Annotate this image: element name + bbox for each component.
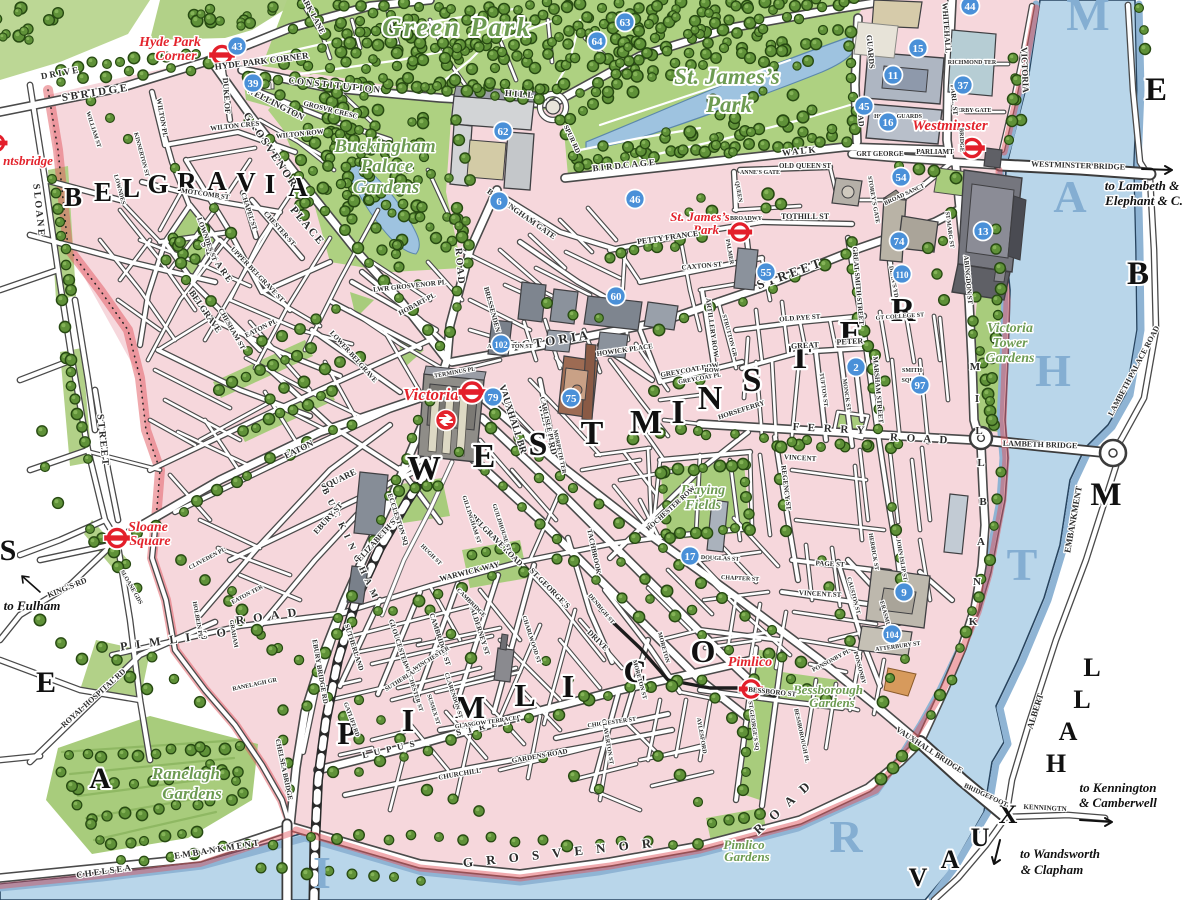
- svg-text:S: S: [0, 534, 16, 567]
- svg-text:Palace: Palace: [360, 156, 414, 177]
- svg-text:R: R: [829, 811, 863, 862]
- svg-text:A: A: [1053, 171, 1086, 222]
- svg-text:I: I: [671, 394, 684, 431]
- svg-text:to Kennington: to Kennington: [1080, 780, 1157, 795]
- svg-text:37: 37: [958, 80, 970, 92]
- svg-text:Corner: Corner: [155, 49, 197, 64]
- svg-text:M: M: [1090, 477, 1121, 513]
- svg-text:15: 15: [913, 43, 925, 55]
- svg-text:11: 11: [888, 70, 898, 82]
- svg-text:HILL: HILL: [505, 88, 536, 100]
- svg-text:W: W: [407, 450, 441, 487]
- svg-text:A: A: [1059, 717, 1078, 746]
- svg-text:L: L: [975, 425, 982, 437]
- svg-text:PAGE ST: PAGE ST: [815, 559, 845, 569]
- svg-text:17: 17: [685, 551, 697, 563]
- svg-text:OLD QUEEN ST: OLD QUEEN ST: [779, 162, 831, 170]
- svg-text:L: L: [1073, 685, 1090, 714]
- svg-text:62: 62: [498, 126, 510, 138]
- svg-text:Victoria: Victoria: [403, 385, 459, 404]
- svg-text:63: 63: [620, 17, 632, 29]
- svg-text:to Fulham: to Fulham: [4, 598, 61, 613]
- svg-text:74: 74: [894, 236, 906, 248]
- svg-text:I: I: [975, 393, 979, 405]
- svg-text:SMITH: SMITH: [902, 368, 922, 374]
- svg-text:102: 102: [494, 340, 508, 350]
- svg-text:L: L: [514, 677, 535, 713]
- svg-text:Sloane: Sloane: [128, 520, 168, 535]
- svg-text:E: E: [1145, 72, 1167, 108]
- svg-text:110: 110: [895, 270, 909, 280]
- svg-text:64: 64: [592, 36, 604, 48]
- svg-text:K: K: [969, 616, 978, 628]
- svg-text:Green Park: Green Park: [382, 12, 532, 42]
- svg-text:VINCENT: VINCENT: [784, 453, 817, 463]
- svg-text:39: 39: [248, 78, 260, 90]
- svg-text:A: A: [941, 845, 960, 874]
- svg-text:Tower: Tower: [992, 336, 1028, 351]
- svg-text:Pimlico: Pimlico: [728, 655, 772, 670]
- svg-text:2: 2: [853, 362, 859, 374]
- svg-text:I: I: [562, 668, 574, 704]
- svg-text:G: G: [147, 169, 168, 199]
- svg-text:N: N: [973, 576, 981, 588]
- svg-text:PETER: PETER: [836, 336, 863, 346]
- svg-text:B: B: [64, 182, 82, 212]
- svg-text:13: 13: [978, 226, 990, 238]
- svg-text:Fields: Fields: [684, 498, 721, 513]
- svg-text:I: I: [313, 847, 331, 898]
- svg-text:L: L: [1083, 653, 1100, 682]
- svg-text:TOTHILL ST: TOTHILL ST: [781, 212, 830, 221]
- svg-text:E: E: [94, 177, 112, 207]
- svg-text:Park: Park: [705, 92, 753, 117]
- svg-text:V: V: [909, 863, 928, 892]
- svg-text:PARLIAMT: PARLIAMT: [916, 148, 954, 156]
- svg-text:I: I: [402, 702, 414, 738]
- svg-text:B: B: [979, 496, 987, 508]
- svg-text:Ranelagh: Ranelagh: [151, 764, 220, 783]
- svg-text:9: 9: [901, 587, 907, 599]
- svg-text:GREAT: GREAT: [791, 340, 820, 350]
- svg-text:L: L: [977, 457, 984, 469]
- svg-text:to Lambeth &: to Lambeth &: [1105, 178, 1179, 193]
- svg-text:Gardens: Gardens: [985, 351, 1035, 366]
- svg-text:& Clapham: & Clapham: [1021, 862, 1084, 877]
- svg-text:Gardens: Gardens: [809, 695, 855, 710]
- svg-text:45: 45: [859, 101, 871, 113]
- svg-text:44: 44: [965, 1, 977, 13]
- svg-text:GRT GEORGE: GRT GEORGE: [856, 150, 904, 158]
- svg-text:Gardens: Gardens: [724, 849, 770, 864]
- svg-text:RICHMOND TER: RICHMOND TER: [948, 60, 997, 66]
- svg-text:97: 97: [915, 380, 927, 392]
- svg-text:Buckingham: Buckingham: [333, 136, 435, 157]
- svg-text:VICTORIA: VICTORIA: [1019, 47, 1031, 94]
- svg-text:E: E: [473, 438, 496, 475]
- svg-text:46: 46: [630, 194, 642, 206]
- svg-text:M: M: [970, 361, 981, 373]
- svg-text:H: H: [1035, 345, 1071, 396]
- svg-text:N: N: [698, 380, 723, 417]
- svg-text:A: A: [89, 762, 111, 795]
- svg-text:55: 55: [761, 267, 773, 279]
- svg-text:BRIDGE: BRIDGE: [958, 128, 965, 152]
- svg-text:T: T: [1007, 539, 1038, 590]
- svg-text:60: 60: [611, 291, 623, 303]
- svg-text:T: T: [581, 415, 604, 452]
- svg-text:E: E: [36, 666, 56, 699]
- svg-text:A: A: [977, 536, 985, 548]
- svg-text:to Wandsworth: to Wandsworth: [1020, 846, 1100, 861]
- svg-text:Square: Square: [129, 534, 170, 549]
- svg-text:Gardens: Gardens: [162, 784, 222, 803]
- svg-text:43: 43: [232, 41, 244, 53]
- svg-text:Westminster: Westminster: [912, 118, 988, 134]
- svg-text:ntsbridge: ntsbridge: [3, 153, 53, 168]
- svg-text:BROADWY: BROADWY: [730, 216, 763, 222]
- svg-text:ANNE'S GATE: ANNE'S GATE: [740, 170, 780, 176]
- svg-text:O: O: [691, 633, 716, 669]
- svg-text:M: M: [1066, 0, 1109, 40]
- svg-text:Victoria: Victoria: [987, 321, 1033, 336]
- svg-text:U: U: [971, 823, 990, 852]
- svg-text:S: S: [743, 362, 762, 399]
- svg-text:Elephant & C.: Elephant & C.: [1104, 193, 1183, 208]
- svg-text:H: H: [1046, 749, 1066, 778]
- svg-text:16: 16: [883, 117, 895, 129]
- svg-text:& Camberwell: & Camberwell: [1079, 795, 1157, 810]
- svg-text:75: 75: [566, 393, 578, 405]
- svg-text:M: M: [630, 404, 662, 441]
- svg-text:Gardens: Gardens: [353, 177, 420, 198]
- svg-text:6: 6: [496, 196, 502, 208]
- svg-text:B: B: [1127, 256, 1149, 292]
- svg-text:Hyde Park: Hyde Park: [138, 35, 201, 50]
- svg-text:79: 79: [488, 392, 500, 404]
- svg-text:I: I: [265, 169, 276, 199]
- svg-text:St. James’s: St. James’s: [674, 64, 780, 89]
- svg-text:104: 104: [885, 630, 899, 640]
- svg-text:54: 54: [896, 172, 908, 184]
